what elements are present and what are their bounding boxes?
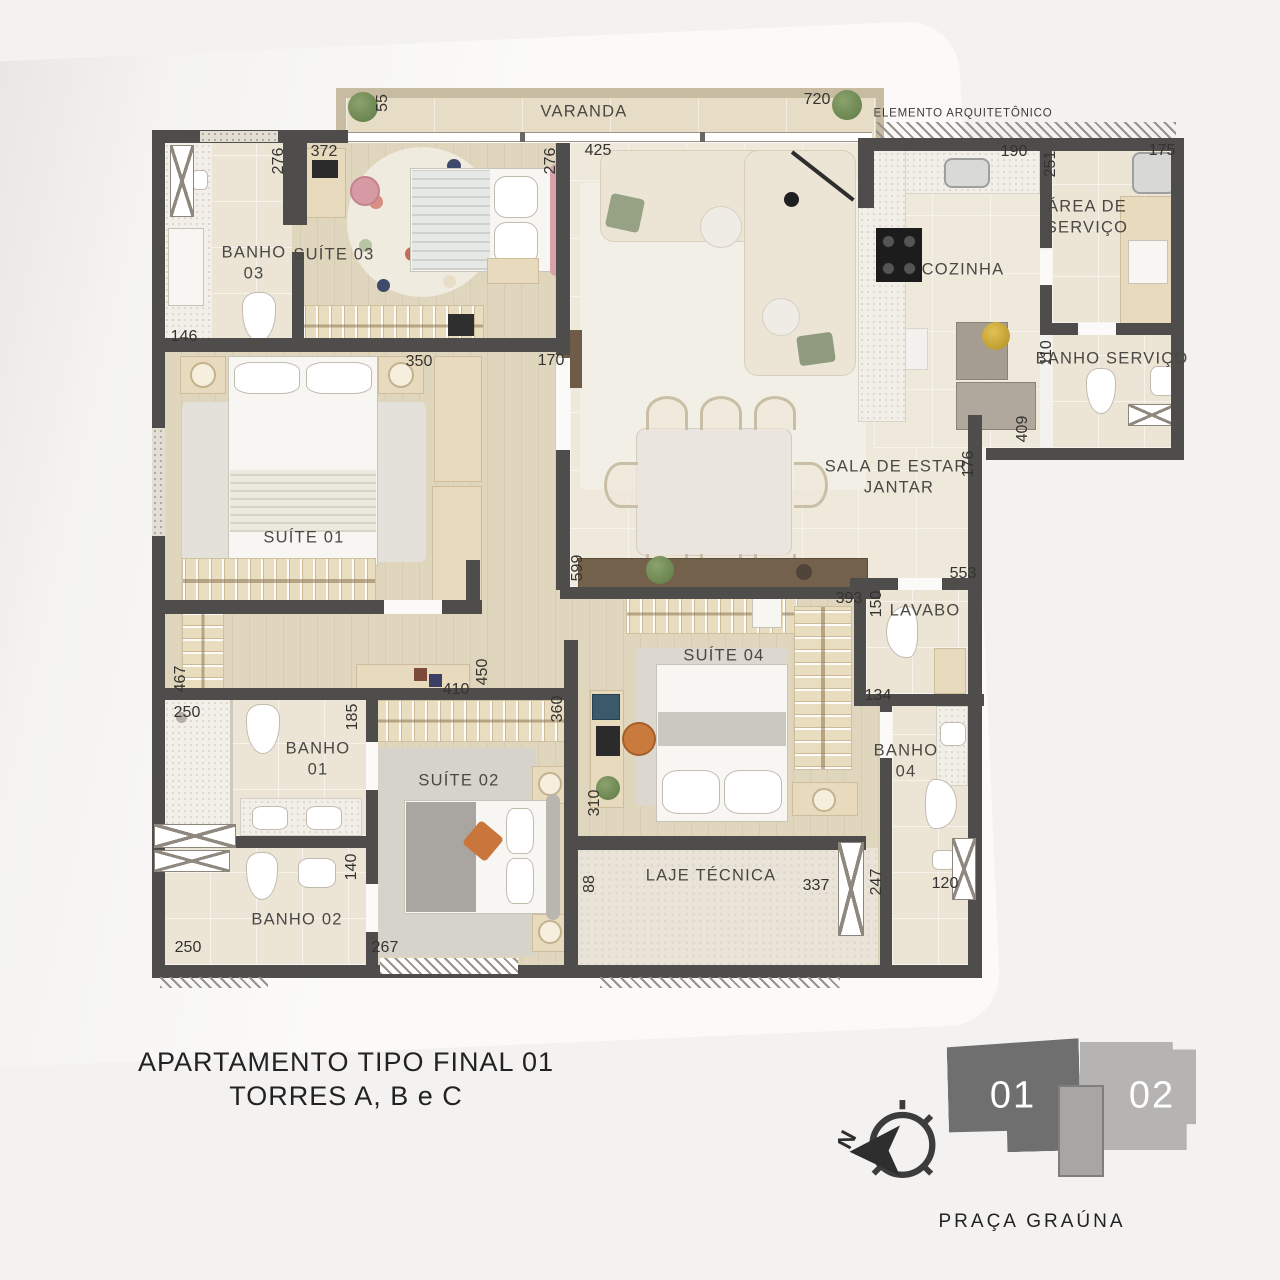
dimension-372: 372 (311, 143, 338, 161)
dimension-185: 185 (344, 704, 362, 731)
dimension-55: 55 (374, 94, 392, 112)
dimension-410: 410 (443, 681, 470, 699)
dimension-250: 250 (175, 939, 202, 957)
room-label-sala-de-estar-jantar: SALA DE ESTAR/ JANTAR (825, 457, 974, 500)
room-label-banho-04: BANHO 04 (874, 741, 939, 784)
dimension-267: 267 (372, 939, 399, 957)
room-label-cozinha: COZINHA (922, 259, 1005, 280)
dimension-146: 146 (171, 328, 198, 346)
dimension-553: 553 (950, 565, 977, 583)
keyplan-unit-02-label: 02 (1129, 1075, 1175, 1118)
room-label-varanda: VARANDA (541, 101, 628, 122)
room-label-suite-04: SUÍTE 04 (683, 645, 764, 666)
room-label-banho-03: BANHO 03 (222, 243, 287, 286)
room-label-laje-tecnica: LAJE TÉCNICA (646, 865, 777, 886)
plan-title-line2: TORRES A, B e C (120, 1080, 572, 1114)
room-label-lavabo: LAVABO (890, 600, 961, 621)
room-label-suite-01: SUÍTE 01 (263, 527, 344, 548)
dimension-120: 120 (932, 875, 959, 893)
dimension-360: 360 (549, 696, 567, 723)
room-label-area-de-servico: ÁREA DE SERVIÇO (1046, 197, 1128, 240)
dimension-409: 409 (1014, 416, 1032, 443)
dimension-176: 176 (960, 451, 978, 478)
dimension-599: 599 (569, 555, 587, 582)
dimension-310: 310 (586, 790, 604, 817)
dimension-720: 720 (804, 91, 831, 109)
dimension-175: 175 (1149, 142, 1176, 160)
dimension-140: 140 (343, 854, 361, 881)
floor-plan-page: VARANDAELEMENTO ARQUITETÔNICOBANHO 03SUÍ… (0, 0, 1280, 1280)
dimension-134: 134 (865, 687, 892, 705)
plan-title: APARTAMENTO TIPO FINAL 01 TORRES A, B e … (120, 1046, 572, 1114)
dimension-276: 276 (270, 148, 288, 175)
keyplan-caption: PRAÇA GRAÚNA (939, 1211, 1126, 1233)
dimension-247: 247 (868, 869, 886, 896)
dimension-276: 276 (542, 148, 560, 175)
room-label-banho-01: BANHO 01 (286, 739, 351, 782)
dimension-350: 350 (406, 353, 433, 371)
room-label-banho-servico: BANHO SERVIÇO (1036, 348, 1189, 369)
plan-title-line1: APARTAMENTO TIPO FINAL 01 (120, 1046, 572, 1080)
dimension-170: 170 (538, 352, 565, 370)
dimension-467: 467 (172, 666, 190, 693)
room-label-banho-02: BANHO 02 (251, 909, 342, 930)
dimension-337: 337 (803, 877, 830, 895)
dimension-250: 250 (174, 704, 201, 722)
dimension-251: 251 (1042, 151, 1060, 178)
keyplan-unit-01-label: 01 (990, 1075, 1036, 1118)
dimension-393: 393 (836, 590, 863, 608)
dimension-88: 88 (581, 875, 599, 893)
room-label-suite-02: SUÍTE 02 (418, 770, 499, 791)
keyplan-core (1058, 1085, 1104, 1177)
dimension-110: 110 (1038, 340, 1056, 366)
dimension-450: 450 (474, 659, 492, 686)
dimension-425: 425 (585, 142, 612, 160)
north-compass-icon: N (838, 1092, 953, 1207)
room-label-elemento-arquitetonico: ELEMENTO ARQUITETÔNICO (873, 107, 1052, 122)
dimension-190: 190 (1001, 143, 1028, 161)
dimension-150: 150 (868, 591, 886, 618)
room-label-suite-03: SUÍTE 03 (293, 244, 374, 265)
